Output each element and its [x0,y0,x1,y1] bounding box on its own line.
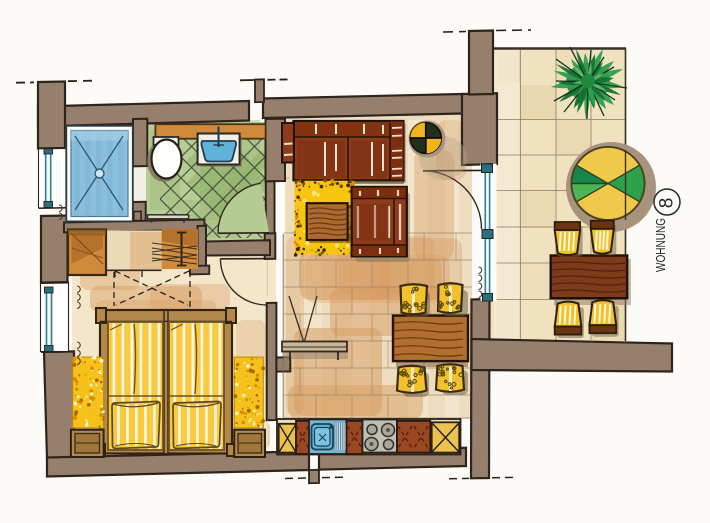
svg-text:WOHNUNG: WOHNUNG [654,218,668,272]
svg-text:8: 8 [657,198,678,209]
